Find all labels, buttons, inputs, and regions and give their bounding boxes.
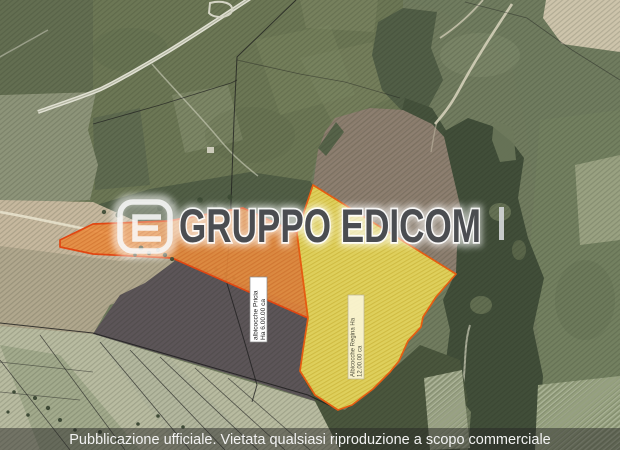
svg-text:albicocche Pricia: albicocche Pricia <box>253 290 260 340</box>
svg-text:Pubblicazione ufficiale. Vieta: Pubblicazione ufficiale. Vietata qualsia… <box>69 432 550 448</box>
svg-text:Albicocche Regina Ha: Albicocche Regina Ha <box>351 317 357 377</box>
svg-text:Ha 6.00.00 ca: Ha 6.00.00 ca <box>260 299 267 340</box>
svg-text:GRUPPO EDICOM: GRUPPO EDICOM <box>179 199 481 252</box>
svg-text:12.00.00 ca: 12.00.00 ca <box>358 345 364 377</box>
